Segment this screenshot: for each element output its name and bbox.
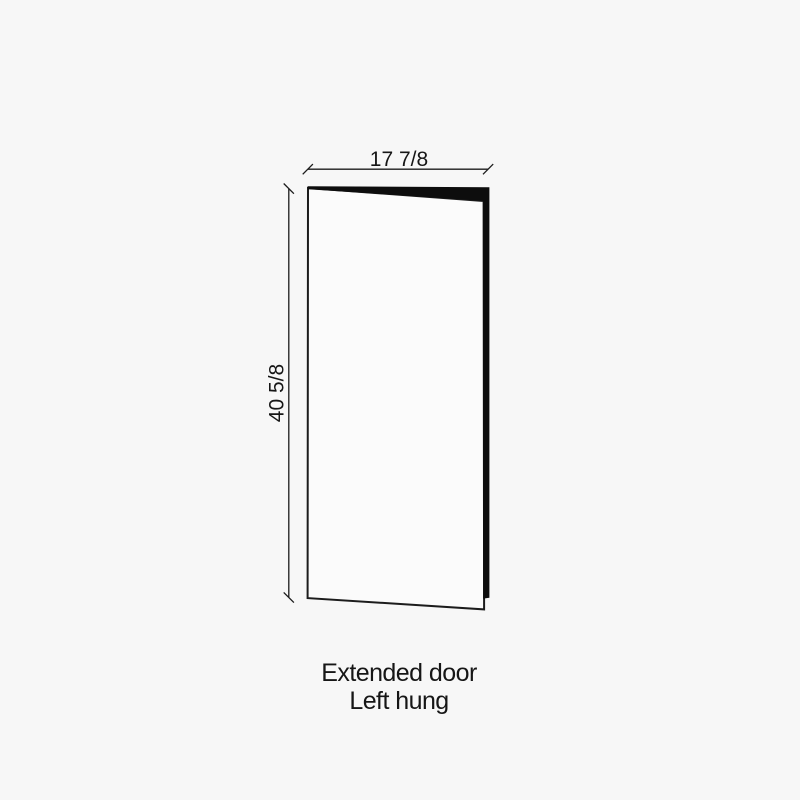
svg-text:Extended door: Extended door xyxy=(321,659,477,687)
svg-text:Left hung: Left hung xyxy=(349,687,448,715)
svg-text:40 5/8: 40 5/8 xyxy=(266,364,289,422)
svg-text:17 7/8: 17 7/8 xyxy=(370,148,428,171)
